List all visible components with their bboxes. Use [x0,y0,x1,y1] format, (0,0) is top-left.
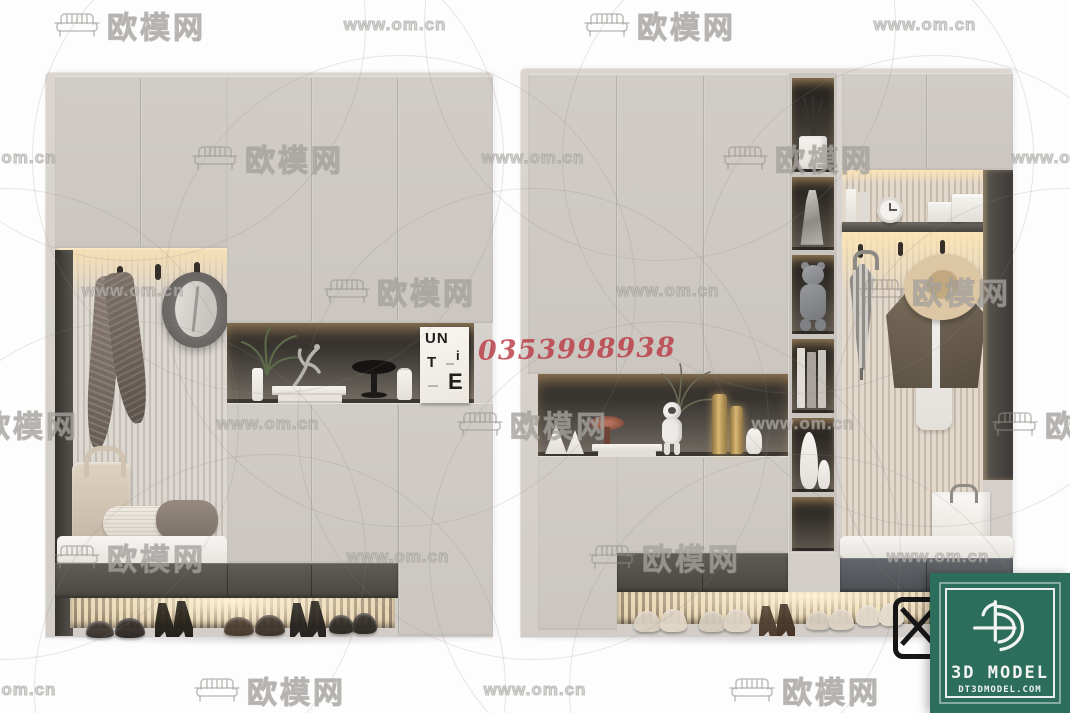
door-seam [140,78,142,246]
gold-lamp [730,406,743,454]
drawer-seam [702,555,703,590]
small-jug [746,428,762,454]
books-stack [272,386,346,395]
right-side-panel [983,170,1013,480]
pillow-gray [156,500,218,540]
books-stack [598,451,656,457]
vertical-books [807,352,816,408]
door-seam [397,78,399,321]
diffuser-bottle [799,136,827,169]
badge-domain: DT3DMODEL.COM [930,685,1070,695]
vase-cylinder [252,368,263,401]
vertical-books [818,350,826,408]
books-stack [278,395,342,403]
bear-leg [815,319,826,331]
poster-caption-line [428,385,438,387]
watermark-url: www.om.cn [1012,148,1070,168]
shelf-books [846,189,856,222]
right-tall-doors [528,74,788,374]
shelf-board [842,222,983,232]
watermark-logo: 欧模网 [194,668,346,712]
door-seam [616,76,618,372]
watermark-logo-text: 欧模网 [107,3,206,47]
diffuser-sticks [796,94,830,140]
left-bench-cushion [57,536,227,566]
bear-head [802,265,824,285]
poster-caption-line [446,363,454,365]
poster-text: i [456,349,460,362]
runner-figurine [288,342,322,390]
sofa-icon [54,12,100,39]
umbrella-tip [860,368,863,380]
books-stack [592,444,662,451]
clock-hand [890,209,897,211]
gold-lamp [712,394,727,454]
coat-hook [155,264,161,280]
astronaut-body [662,418,682,444]
astronaut-legs [664,442,670,455]
left-tall-doors [227,76,493,323]
watermark-logo-text: 欧模网 [782,668,881,712]
door-seam [311,78,313,321]
right-filler-panel [538,456,617,630]
watermark-url: www.om.cn [344,15,447,35]
bear-figurine [795,262,831,332]
sofa-icon [584,12,630,39]
sofa-icon [729,677,775,704]
watermark-url: www.om.cn [874,15,977,35]
watermark-url: www.om.cn [484,680,587,700]
mini-sculpture [397,368,412,400]
watermark-url: www.om.cn [0,680,56,700]
sofa-icon [194,677,240,704]
shopping-bag [932,492,990,540]
badge-logo-icon [970,597,1030,657]
amber-bowl-stem [604,427,610,445]
bear-body [800,284,826,320]
poster-text: UN [425,331,449,346]
watermark-logo-text: 欧模网 [247,668,346,712]
unite-poster: UN i T E [420,327,469,403]
left-bottom-right-door [398,403,493,636]
drawer-seam [311,565,312,596]
vertical-books [797,348,805,408]
poster-text: E [448,371,463,393]
door-seam [926,75,928,168]
coat-hook [940,240,945,254]
door-seam [703,76,705,372]
column-niche-empty [792,497,834,551]
astronaut-figurine [658,402,686,455]
watermark-logo: 欧模网 [54,3,206,47]
small-vase [818,460,830,489]
alarm-clock [877,197,903,223]
door-seam [311,405,313,561]
shelf-books [858,192,869,222]
handbag-handle [84,446,126,477]
pedestal-stem [371,371,377,393]
drawer-seam [227,565,228,596]
astronaut-visor [668,407,676,414]
watermark-logo-text: 欧模网 [637,3,736,47]
poster-text: T [427,355,436,370]
door-seam [703,458,705,551]
bag-handle [950,484,978,503]
pedestal-base [361,392,387,398]
umbrella-body [847,264,877,370]
watermark-logo: 欧模网 [584,3,736,47]
hanging-scarf [84,270,150,462]
product-render: UN i T E [0,0,1070,713]
drawer-seam [926,560,927,590]
badge-title: 3D MODEL [930,663,1070,683]
coat-hook [898,242,903,256]
door-seam [398,405,400,634]
watermark-logo-text: 欧模网 [1045,402,1070,446]
astronaut-legs [674,442,680,455]
wall-hat [162,272,230,348]
umbrella [845,250,879,384]
site-badge: 3D MODEL DT3DMODEL.COM [930,573,1070,713]
right-bench-cushion [840,536,1013,558]
bear-leg [800,319,811,331]
watermark-logo: 欧模网 [729,668,881,712]
phone-number-watermark: 0353998938 [478,332,676,366]
